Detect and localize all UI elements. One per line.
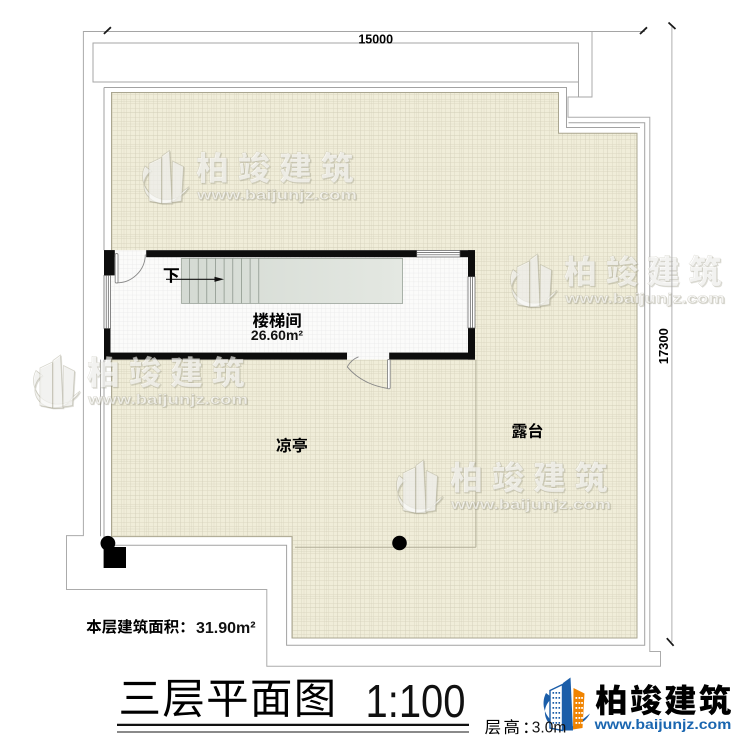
svg-text:1:100: 1:100 bbox=[366, 675, 466, 727]
svg-text:3.0m: 3.0m bbox=[532, 720, 566, 737]
svg-text:15000: 15000 bbox=[358, 33, 393, 47]
svg-text:26.60m²: 26.60m² bbox=[251, 327, 303, 343]
svg-text:17300: 17300 bbox=[656, 328, 671, 364]
svg-text:www.baijunjz.com: www.baijunjz.com bbox=[593, 717, 731, 732]
svg-text:31.90m²: 31.90m² bbox=[196, 620, 256, 637]
